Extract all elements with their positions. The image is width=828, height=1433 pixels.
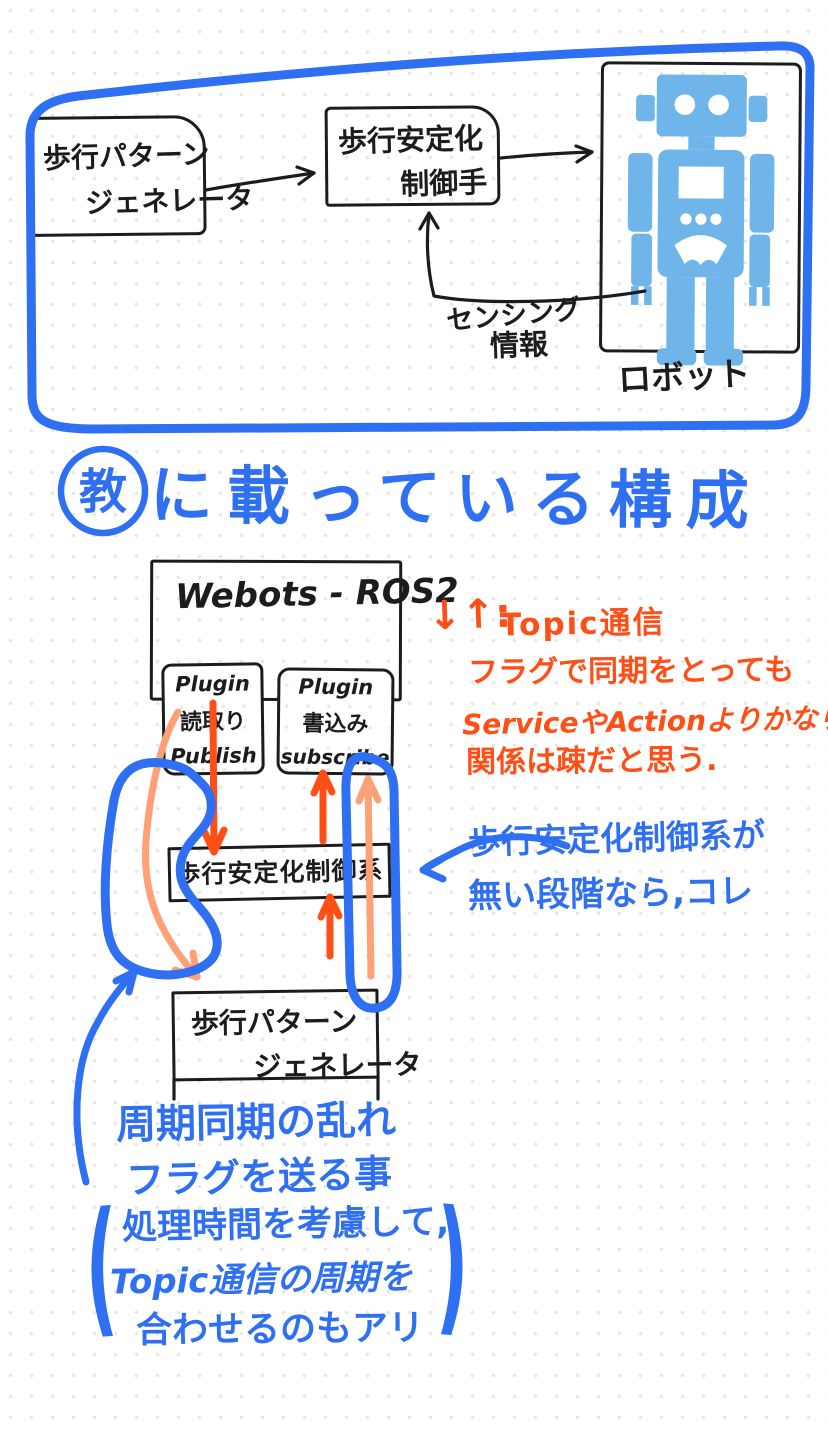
webots-ros2-title: Webots - ROS2 bbox=[153, 560, 400, 618]
orange-arrow-generator-to-controller bbox=[321, 897, 339, 956]
plugin-write-line3: subscribe bbox=[280, 737, 391, 769]
orange-arrow-controller-to-subscribe bbox=[314, 773, 332, 841]
plugin-read-line2: 読取り bbox=[165, 695, 262, 736]
plugin-write-line1: Plugin bbox=[280, 670, 391, 699]
sensing-label-line2: 情報 bbox=[489, 321, 548, 365]
orange-note-line4: 関係は疎だと思う. bbox=[466, 735, 718, 781]
plugin-read-box: Plugin 読取り Publish bbox=[161, 662, 265, 775]
pattern-generator-label-line1: 歩行パターン bbox=[32, 117, 203, 178]
heading-circled-char: 教 bbox=[64, 452, 142, 532]
pattern-generator-bottom-line1: 歩行パターン bbox=[174, 992, 376, 1043]
robot-icon bbox=[620, 70, 780, 371]
pattern-generator-bottom-line2: ジェネレータ bbox=[175, 1040, 377, 1087]
pattern-generator-box-bottom: 歩行パターン ジェネレータ bbox=[171, 989, 379, 1082]
stabilizer-label-line2: 制御手 bbox=[328, 157, 498, 205]
blue-note-bottom-paren-close: ) bbox=[435, 1178, 470, 1352]
orange-note-line2: フラグで同期をとっても bbox=[468, 645, 794, 692]
blue-note-bottom-line1: 周期同期の乱れ bbox=[116, 1088, 397, 1151]
robot-box bbox=[599, 61, 802, 353]
stabilizer-label-line1: 歩行安定化 bbox=[327, 107, 497, 161]
plugin-read-line3: Publish bbox=[165, 735, 261, 768]
heading-text: に載っている構成 bbox=[150, 445, 764, 542]
arrow-stabilizer-to-robot bbox=[501, 146, 592, 162]
plugin-write-box: Plugin 書込み subscribe bbox=[276, 667, 394, 775]
controller-box-label: 歩行安定化制御系 bbox=[171, 846, 389, 901]
blue-note-right-line1: 歩行安定化制御系が bbox=[467, 808, 765, 864]
pattern-generator-box-top: 歩行パターン ジェネレータ bbox=[29, 115, 206, 237]
blue-note-bottom-line5: 合わせるのもアリ bbox=[136, 1299, 424, 1354]
notebook-page: { "top_diagram": { "pattern_generator_bo… bbox=[0, 0, 828, 1433]
blue-note-right-line2: 無い段階なら,コレ bbox=[468, 864, 754, 918]
plugin-read-line1: Plugin bbox=[164, 665, 260, 696]
plugin-write-line2: 書込み bbox=[280, 698, 391, 738]
blue-note-bottom-line3: 処理時間を考慮して, bbox=[122, 1193, 450, 1250]
blue-note-bottom-line4: Topic通信の周期を bbox=[110, 1249, 413, 1303]
pattern-generator-label-line2: ジェネレータ bbox=[33, 173, 204, 224]
controller-box: 歩行安定化制御系 bbox=[167, 843, 391, 903]
orange-note-line1: Topic通信 bbox=[500, 597, 666, 645]
stabilizer-box-top: 歩行安定化 制御手 bbox=[325, 105, 501, 207]
robot-label: ロボット bbox=[617, 347, 751, 402]
